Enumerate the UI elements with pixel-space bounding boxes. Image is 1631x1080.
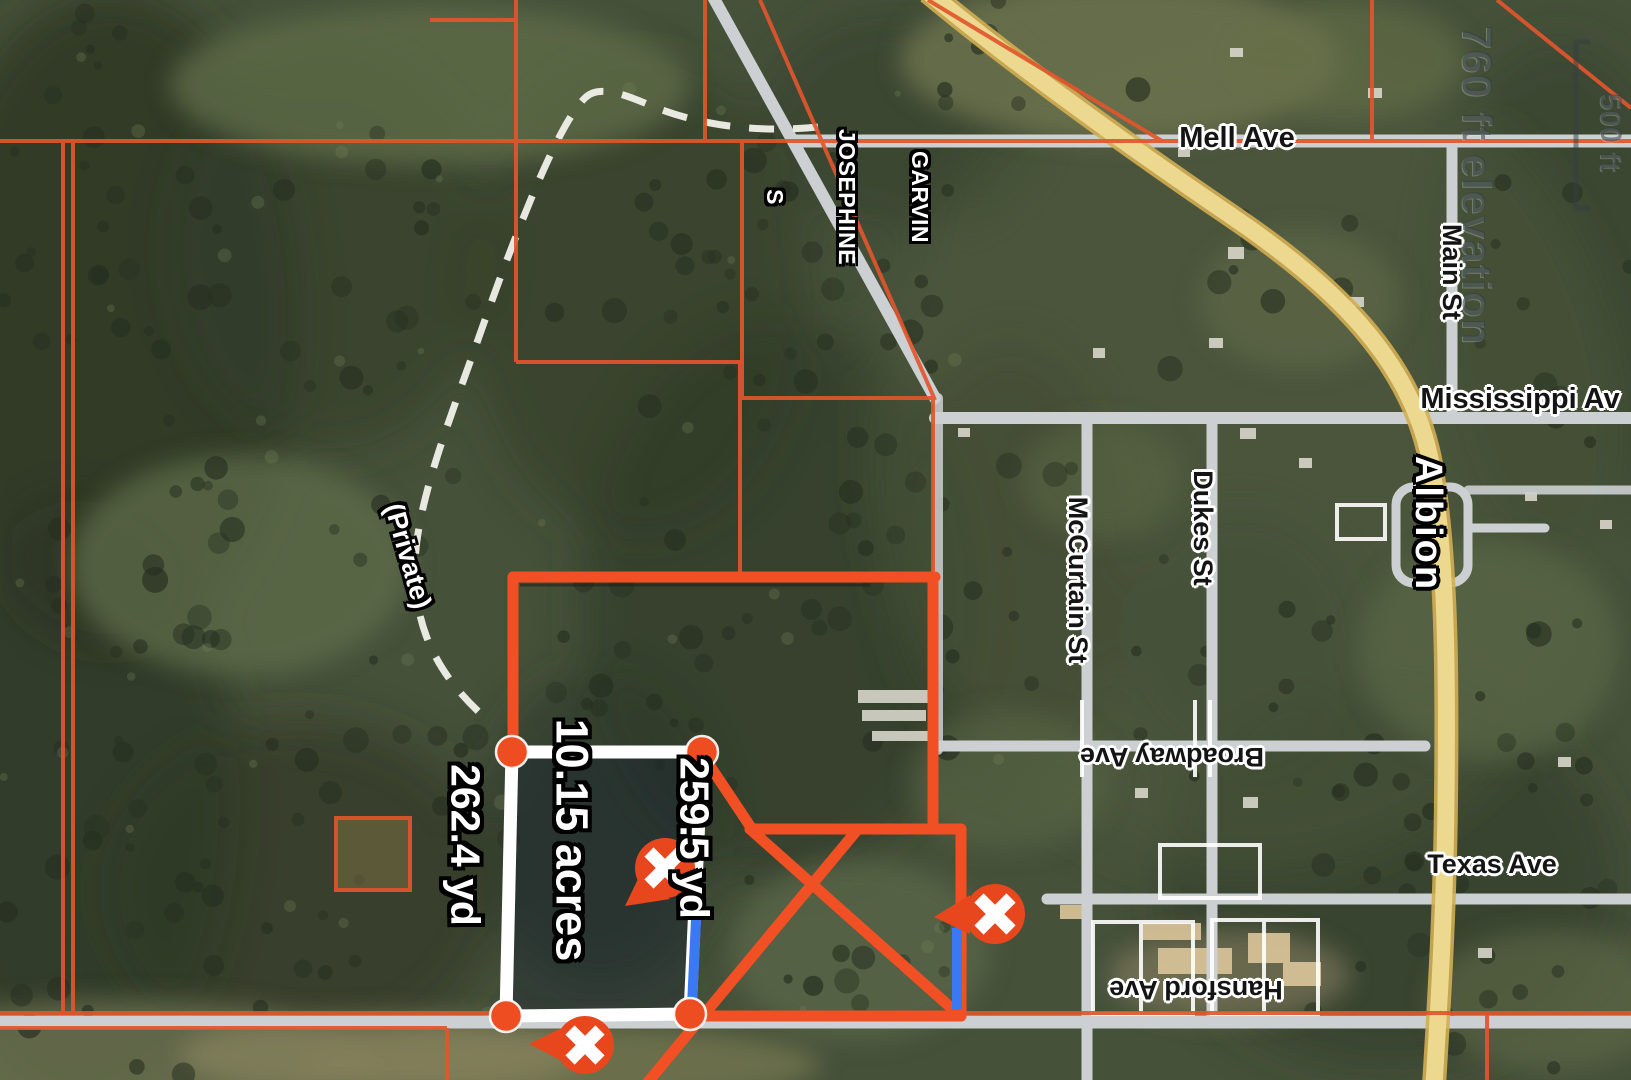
satellite-map-layer[interactable] bbox=[0, 0, 1631, 1080]
vertex-handle[interactable] bbox=[674, 998, 706, 1030]
map-canvas[interactable]: Mell Ave Main St Mississippi Av Albion D… bbox=[0, 0, 1631, 1080]
vertex-handle[interactable] bbox=[496, 736, 528, 768]
vertex-handle[interactable] bbox=[490, 1000, 522, 1032]
vertex-handle[interactable] bbox=[686, 736, 718, 768]
